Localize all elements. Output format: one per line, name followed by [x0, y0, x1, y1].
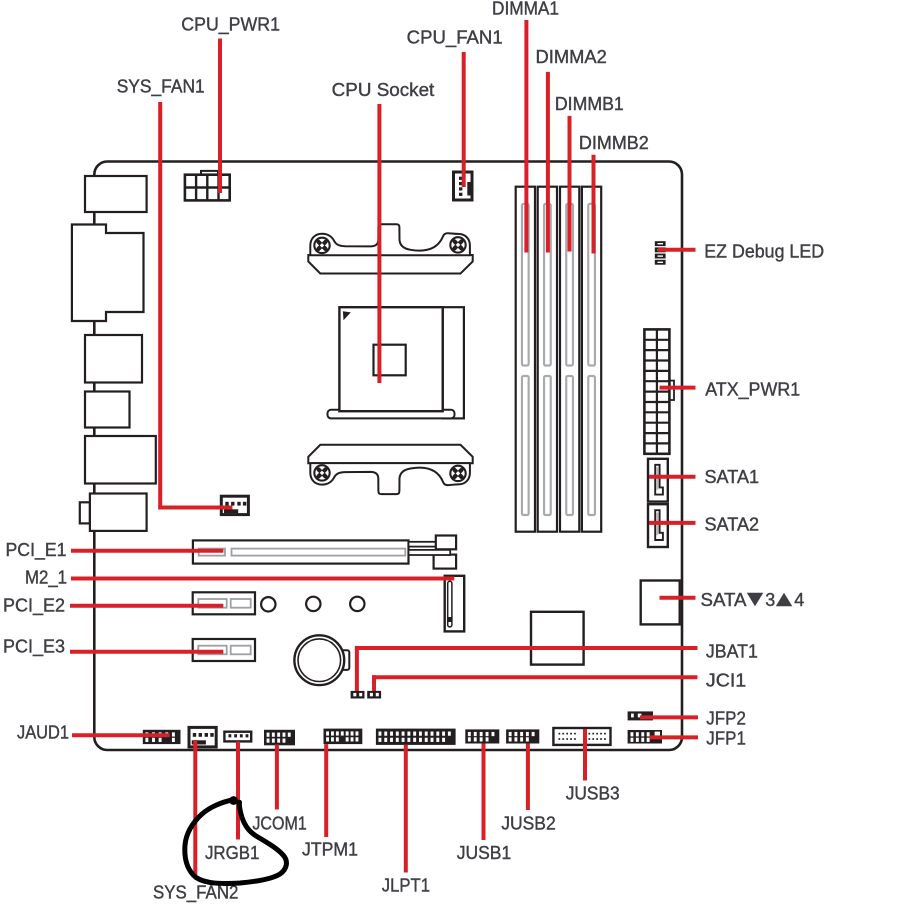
svg-text:DIMMA1: DIMMA1 — [492, 0, 559, 18]
svg-text:SATA: SATA — [701, 589, 748, 610]
svg-text:SATA2: SATA2 — [705, 513, 760, 534]
svg-text:PCI_E3: PCI_E3 — [3, 636, 65, 658]
svg-text:EZ Debug LED: EZ Debug LED — [704, 241, 824, 262]
svg-text:JAUD1: JAUD1 — [17, 722, 69, 743]
svg-text:DIMMB1: DIMMB1 — [555, 93, 624, 114]
svg-text:JUSB1: JUSB1 — [457, 842, 512, 863]
svg-text:PCI_E2: PCI_E2 — [3, 595, 65, 617]
svg-text:3: 3 — [765, 589, 775, 610]
svg-text:SATA1: SATA1 — [705, 466, 760, 487]
svg-text:CPU Socket: CPU Socket — [332, 79, 435, 100]
svg-text:CPU_FAN1: CPU_FAN1 — [407, 27, 503, 49]
svg-text:JFP2: JFP2 — [706, 707, 746, 728]
svg-text:SYS_FAN1: SYS_FAN1 — [117, 75, 205, 97]
svg-text:DIMMA2: DIMMA2 — [536, 46, 607, 67]
svg-text:JTPM1: JTPM1 — [302, 839, 358, 860]
svg-text:JRGB1: JRGB1 — [205, 842, 259, 863]
svg-text:CPU_PWR1: CPU_PWR1 — [181, 13, 280, 35]
svg-text:4: 4 — [794, 589, 804, 610]
svg-text:JCI1: JCI1 — [706, 670, 746, 691]
svg-text:JBAT1: JBAT1 — [706, 641, 758, 662]
svg-text:DIMMB2: DIMMB2 — [579, 132, 649, 153]
svg-text:JUSB2: JUSB2 — [501, 813, 556, 834]
svg-text:JFP1: JFP1 — [706, 727, 746, 748]
svg-text:JCOM1: JCOM1 — [252, 813, 306, 834]
svg-text:ATX_PWR1: ATX_PWR1 — [705, 378, 800, 400]
svg-text:JUSB3: JUSB3 — [566, 783, 620, 804]
svg-text:PCI_E1: PCI_E1 — [6, 539, 67, 561]
svg-text:JLPT1: JLPT1 — [382, 875, 430, 896]
svg-text:M2_1: M2_1 — [25, 567, 67, 589]
